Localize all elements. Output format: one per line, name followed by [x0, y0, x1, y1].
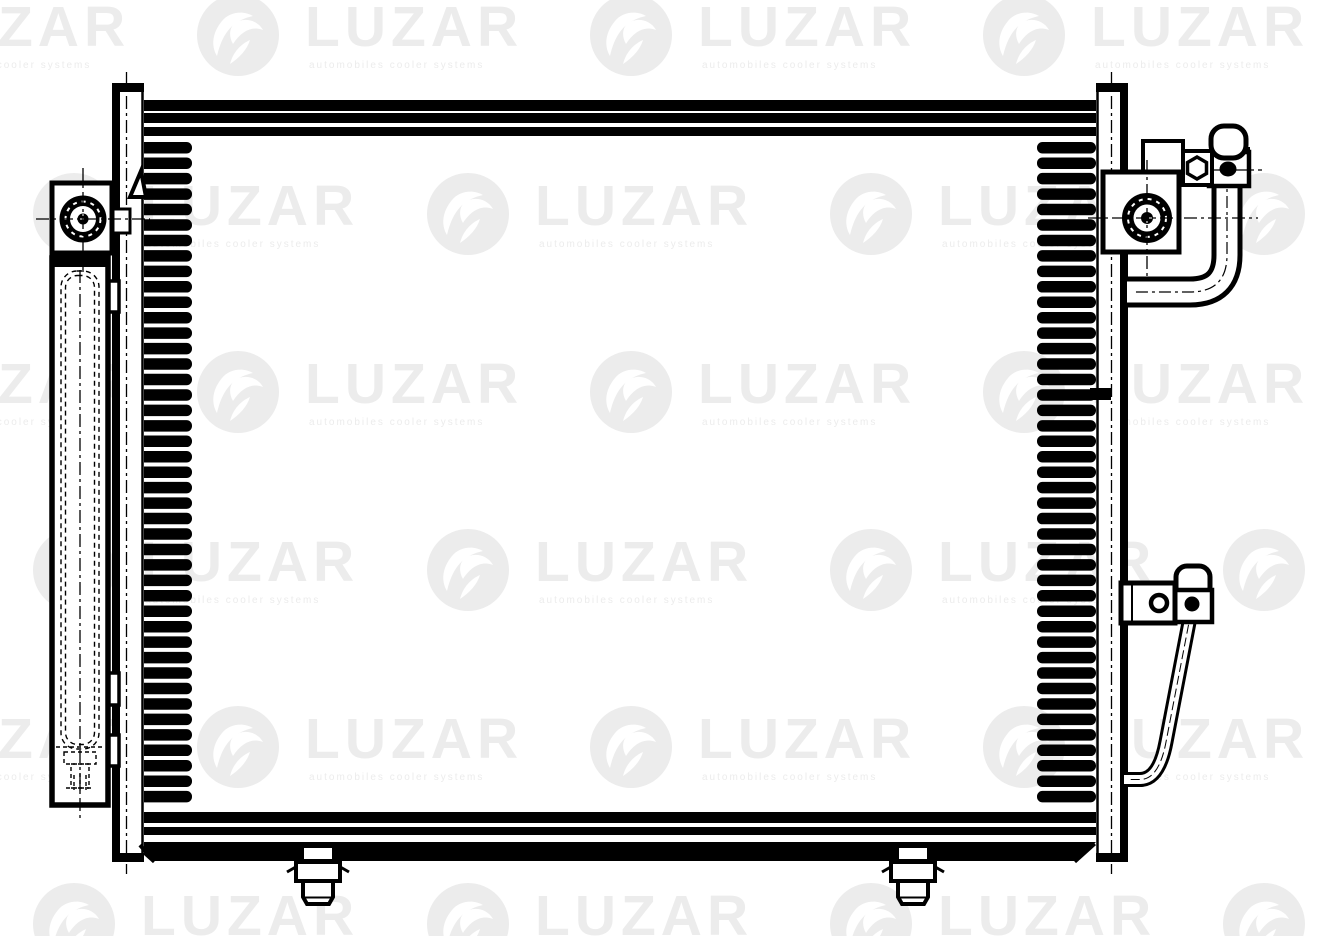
fin-bar	[1037, 389, 1096, 401]
fin-bar	[1037, 590, 1096, 602]
fin-bar	[1037, 791, 1096, 803]
fin-bar	[1037, 760, 1096, 772]
fin-bar	[1037, 621, 1096, 633]
fin-bar	[1037, 714, 1096, 726]
top-tank-lines	[133, 100, 1096, 136]
fin-bar	[1037, 312, 1096, 324]
fin-bar	[1037, 652, 1096, 664]
fin-bar	[1037, 188, 1096, 200]
fin-bar	[1037, 281, 1096, 293]
fin-bar	[1037, 250, 1096, 262]
fin-bar	[1037, 204, 1096, 216]
condenser-technical-drawing	[0, 0, 1327, 936]
fin-bar	[1037, 544, 1096, 556]
fin-bar	[1037, 451, 1096, 463]
service-valve-cap	[1211, 126, 1246, 158]
hex-nut	[1188, 157, 1207, 179]
fin-bar	[1037, 667, 1096, 679]
fin-bar	[1037, 729, 1096, 741]
receiver-drier	[52, 246, 119, 820]
bottom-tank-lines	[133, 812, 1096, 862]
fin-bar	[1037, 173, 1096, 185]
fin-bar	[1037, 528, 1096, 540]
outlet-pipe-assembly	[1121, 566, 1212, 780]
fin-bar	[1037, 513, 1096, 525]
outlet-pipe	[1124, 612, 1191, 780]
fin-bar	[1037, 497, 1096, 509]
fin-bar	[1037, 343, 1096, 355]
fin-bar	[1037, 358, 1096, 370]
fin-bar	[1037, 420, 1096, 432]
fin-bar	[1037, 374, 1096, 386]
fin-bar	[1037, 405, 1096, 417]
fin-bar	[1037, 266, 1096, 278]
fin-bar	[1037, 636, 1096, 648]
fin-bar	[1037, 559, 1096, 571]
fin-bar	[1037, 698, 1096, 710]
fin-bar	[1037, 235, 1096, 247]
fin-bar	[1037, 219, 1096, 231]
valve-bracket	[1143, 141, 1183, 172]
fin-bar	[1037, 683, 1096, 695]
fin-bar	[1037, 575, 1096, 587]
fin-bar	[1037, 466, 1096, 478]
fin-bar	[1037, 745, 1096, 757]
fin-bar	[1037, 327, 1096, 339]
fin-bar	[1037, 157, 1096, 169]
fin-bar	[1037, 606, 1096, 618]
fin-bar	[1037, 142, 1096, 154]
bracket-hole	[1151, 595, 1167, 611]
fin-bar	[1037, 297, 1096, 309]
fin-bar	[1037, 482, 1096, 494]
fin-comb-right	[1037, 142, 1096, 802]
plate-tab	[1090, 388, 1111, 400]
fin-bar	[1037, 436, 1096, 448]
condenser-drawing-page: LUZARautomobiles cooler systemsLUZARauto…	[0, 0, 1327, 936]
fin-bar	[1037, 775, 1096, 787]
